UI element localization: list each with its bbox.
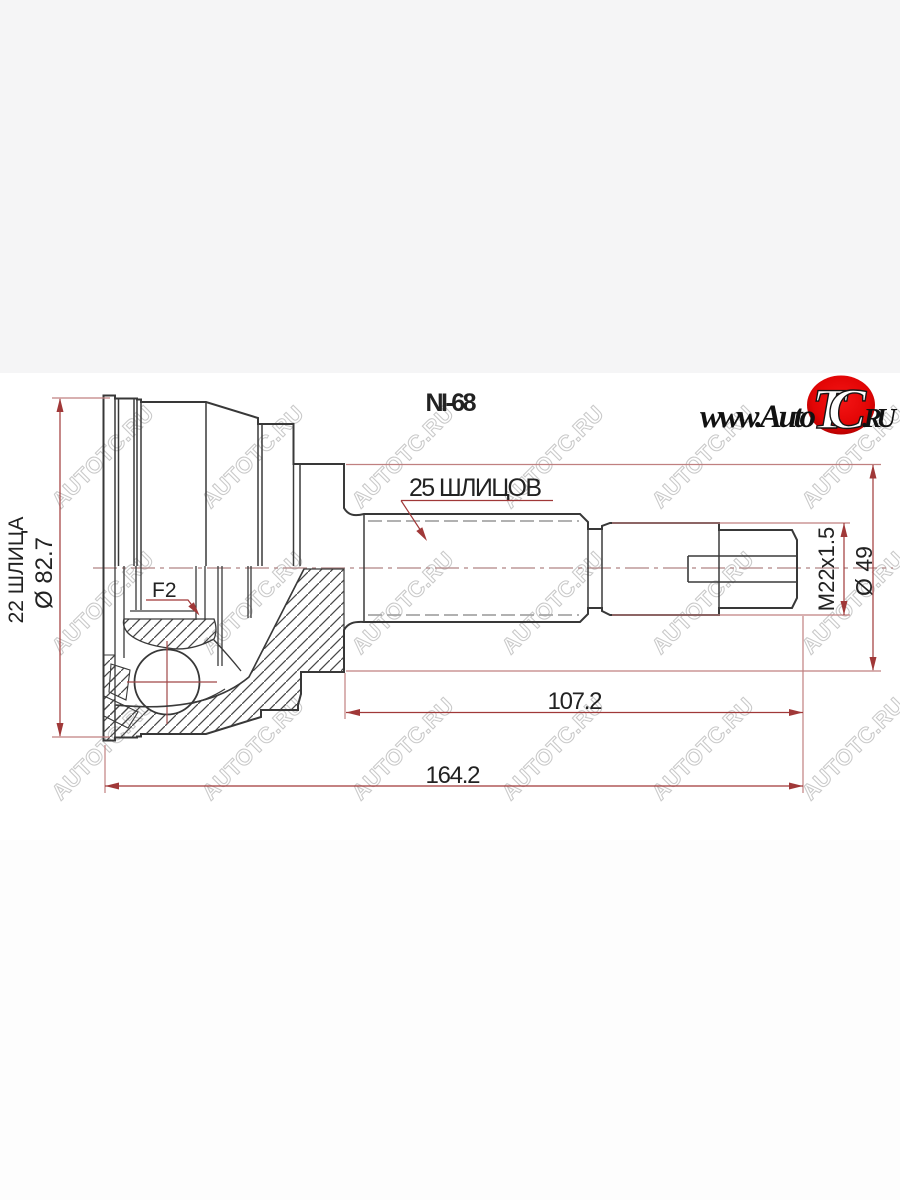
svg-text:.RU: .RU (862, 403, 898, 433)
svg-text:Ø 49: Ø 49 (851, 546, 877, 596)
svg-text:Ø 82.7: Ø 82.7 (31, 537, 58, 609)
svg-text:TC: TC (812, 378, 867, 441)
svg-text:M22x1.5: M22x1.5 (814, 527, 839, 611)
svg-text:22 ШЛИЦА: 22 ШЛИЦА (5, 517, 28, 624)
svg-text:164.2: 164.2 (426, 762, 481, 789)
svg-text:25 ШЛИЦОВ: 25 ШЛИЦОВ (409, 474, 542, 502)
svg-text:F2: F2 (152, 579, 177, 602)
svg-text:107.2: 107.2 (548, 688, 603, 715)
svg-text:www.Auto: www.Auto (700, 399, 816, 435)
svg-text:NI-68: NI-68 (426, 389, 477, 417)
